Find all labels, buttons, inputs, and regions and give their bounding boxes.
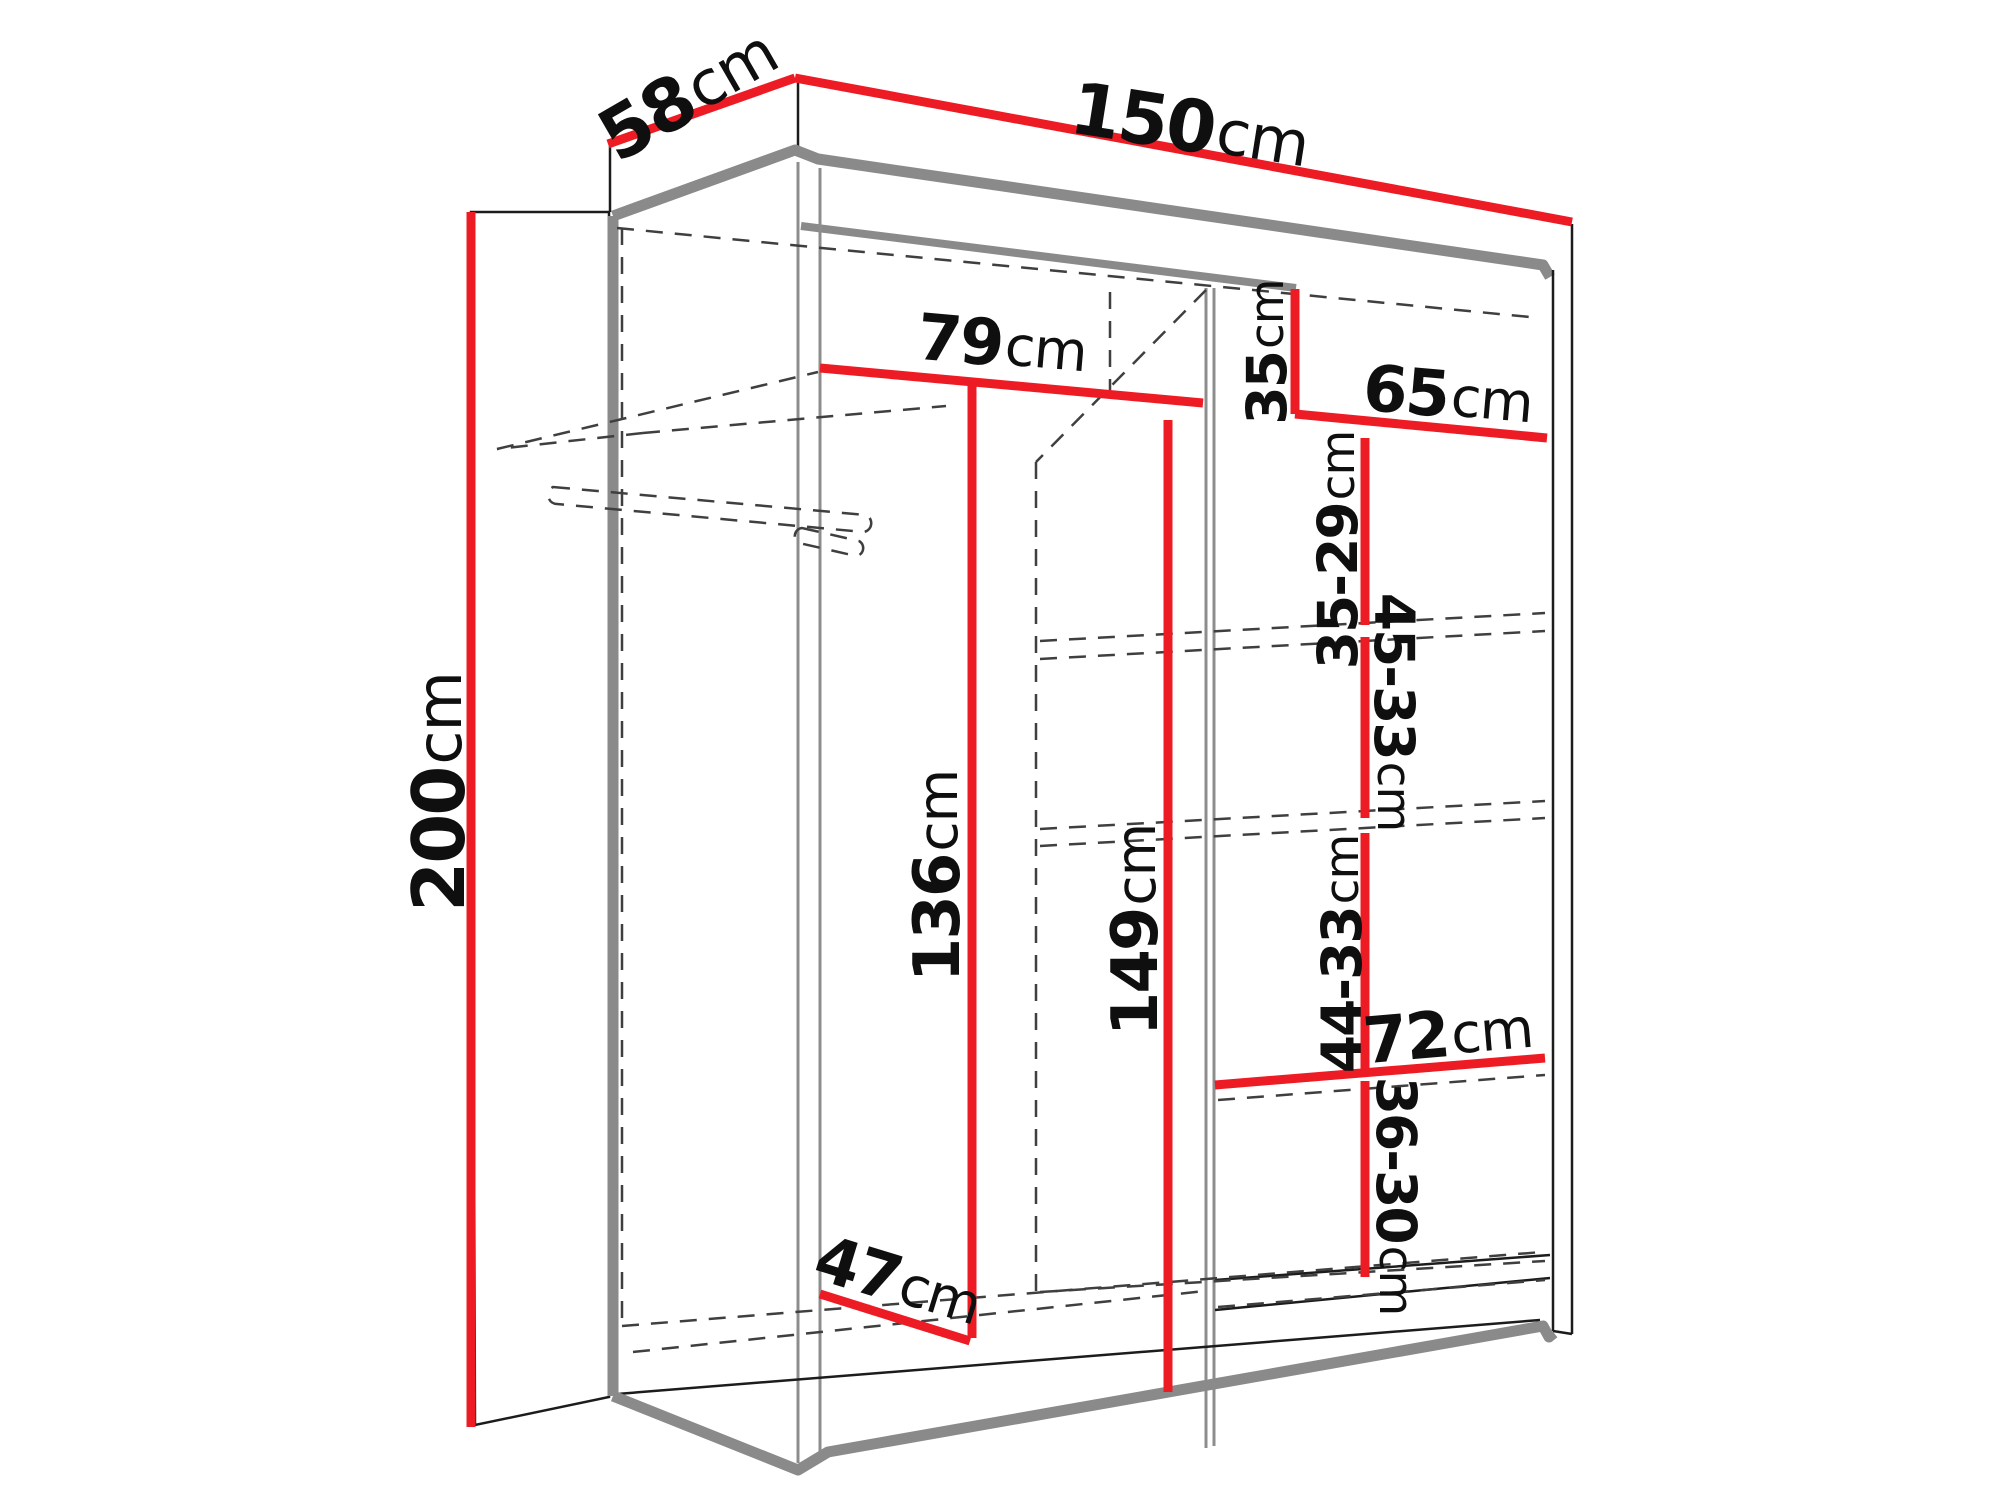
rail-bracket-dashed bbox=[795, 528, 863, 556]
wardrobe-dimension-diagram: 58cm 150cm 200cm 79cm 35cm 65cm 35-29cm … bbox=[0, 0, 2000, 1500]
height-dimension-label: 200cm bbox=[397, 672, 481, 912]
bottom-silhouette-edge bbox=[613, 1326, 1554, 1470]
shelf1-back-dashed bbox=[1040, 631, 1545, 659]
bottom-front-rail bbox=[617, 1320, 1540, 1394]
right-compartment-width-label: 65cm bbox=[1360, 352, 1536, 441]
crown-under-edge bbox=[801, 226, 1296, 288]
bottom-shelf-width-label: 72cm bbox=[1360, 991, 1536, 1080]
side-panel bbox=[471, 212, 609, 1425]
width-dimension-label: 150cm bbox=[1065, 66, 1315, 186]
top-shelf-front-edge-dashed bbox=[643, 406, 946, 433]
shelf-spacing-2-label: 45-33cm bbox=[1362, 593, 1426, 832]
right-bottom-join bbox=[1553, 1331, 1572, 1334]
shelf-spacing-4-label: 36-30cm bbox=[1364, 1077, 1428, 1316]
shelf1-front-dashed bbox=[1040, 613, 1545, 641]
depth-dimension-label: 58cm bbox=[584, 10, 792, 179]
middle-section-height-label: 149cm bbox=[1099, 824, 1173, 1036]
top-compartment-height-label: 35cm bbox=[1235, 279, 1299, 424]
diagram-canvas: 58cm 150cm 200cm 79cm 35cm 65cm 35-29cm … bbox=[0, 0, 2000, 1500]
hanging-space-height-label: 136cm bbox=[901, 770, 975, 982]
shelf-spacing-1-label: 35-29cm bbox=[1306, 431, 1370, 670]
left-compartment-width-label: 79cm bbox=[914, 301, 1090, 390]
